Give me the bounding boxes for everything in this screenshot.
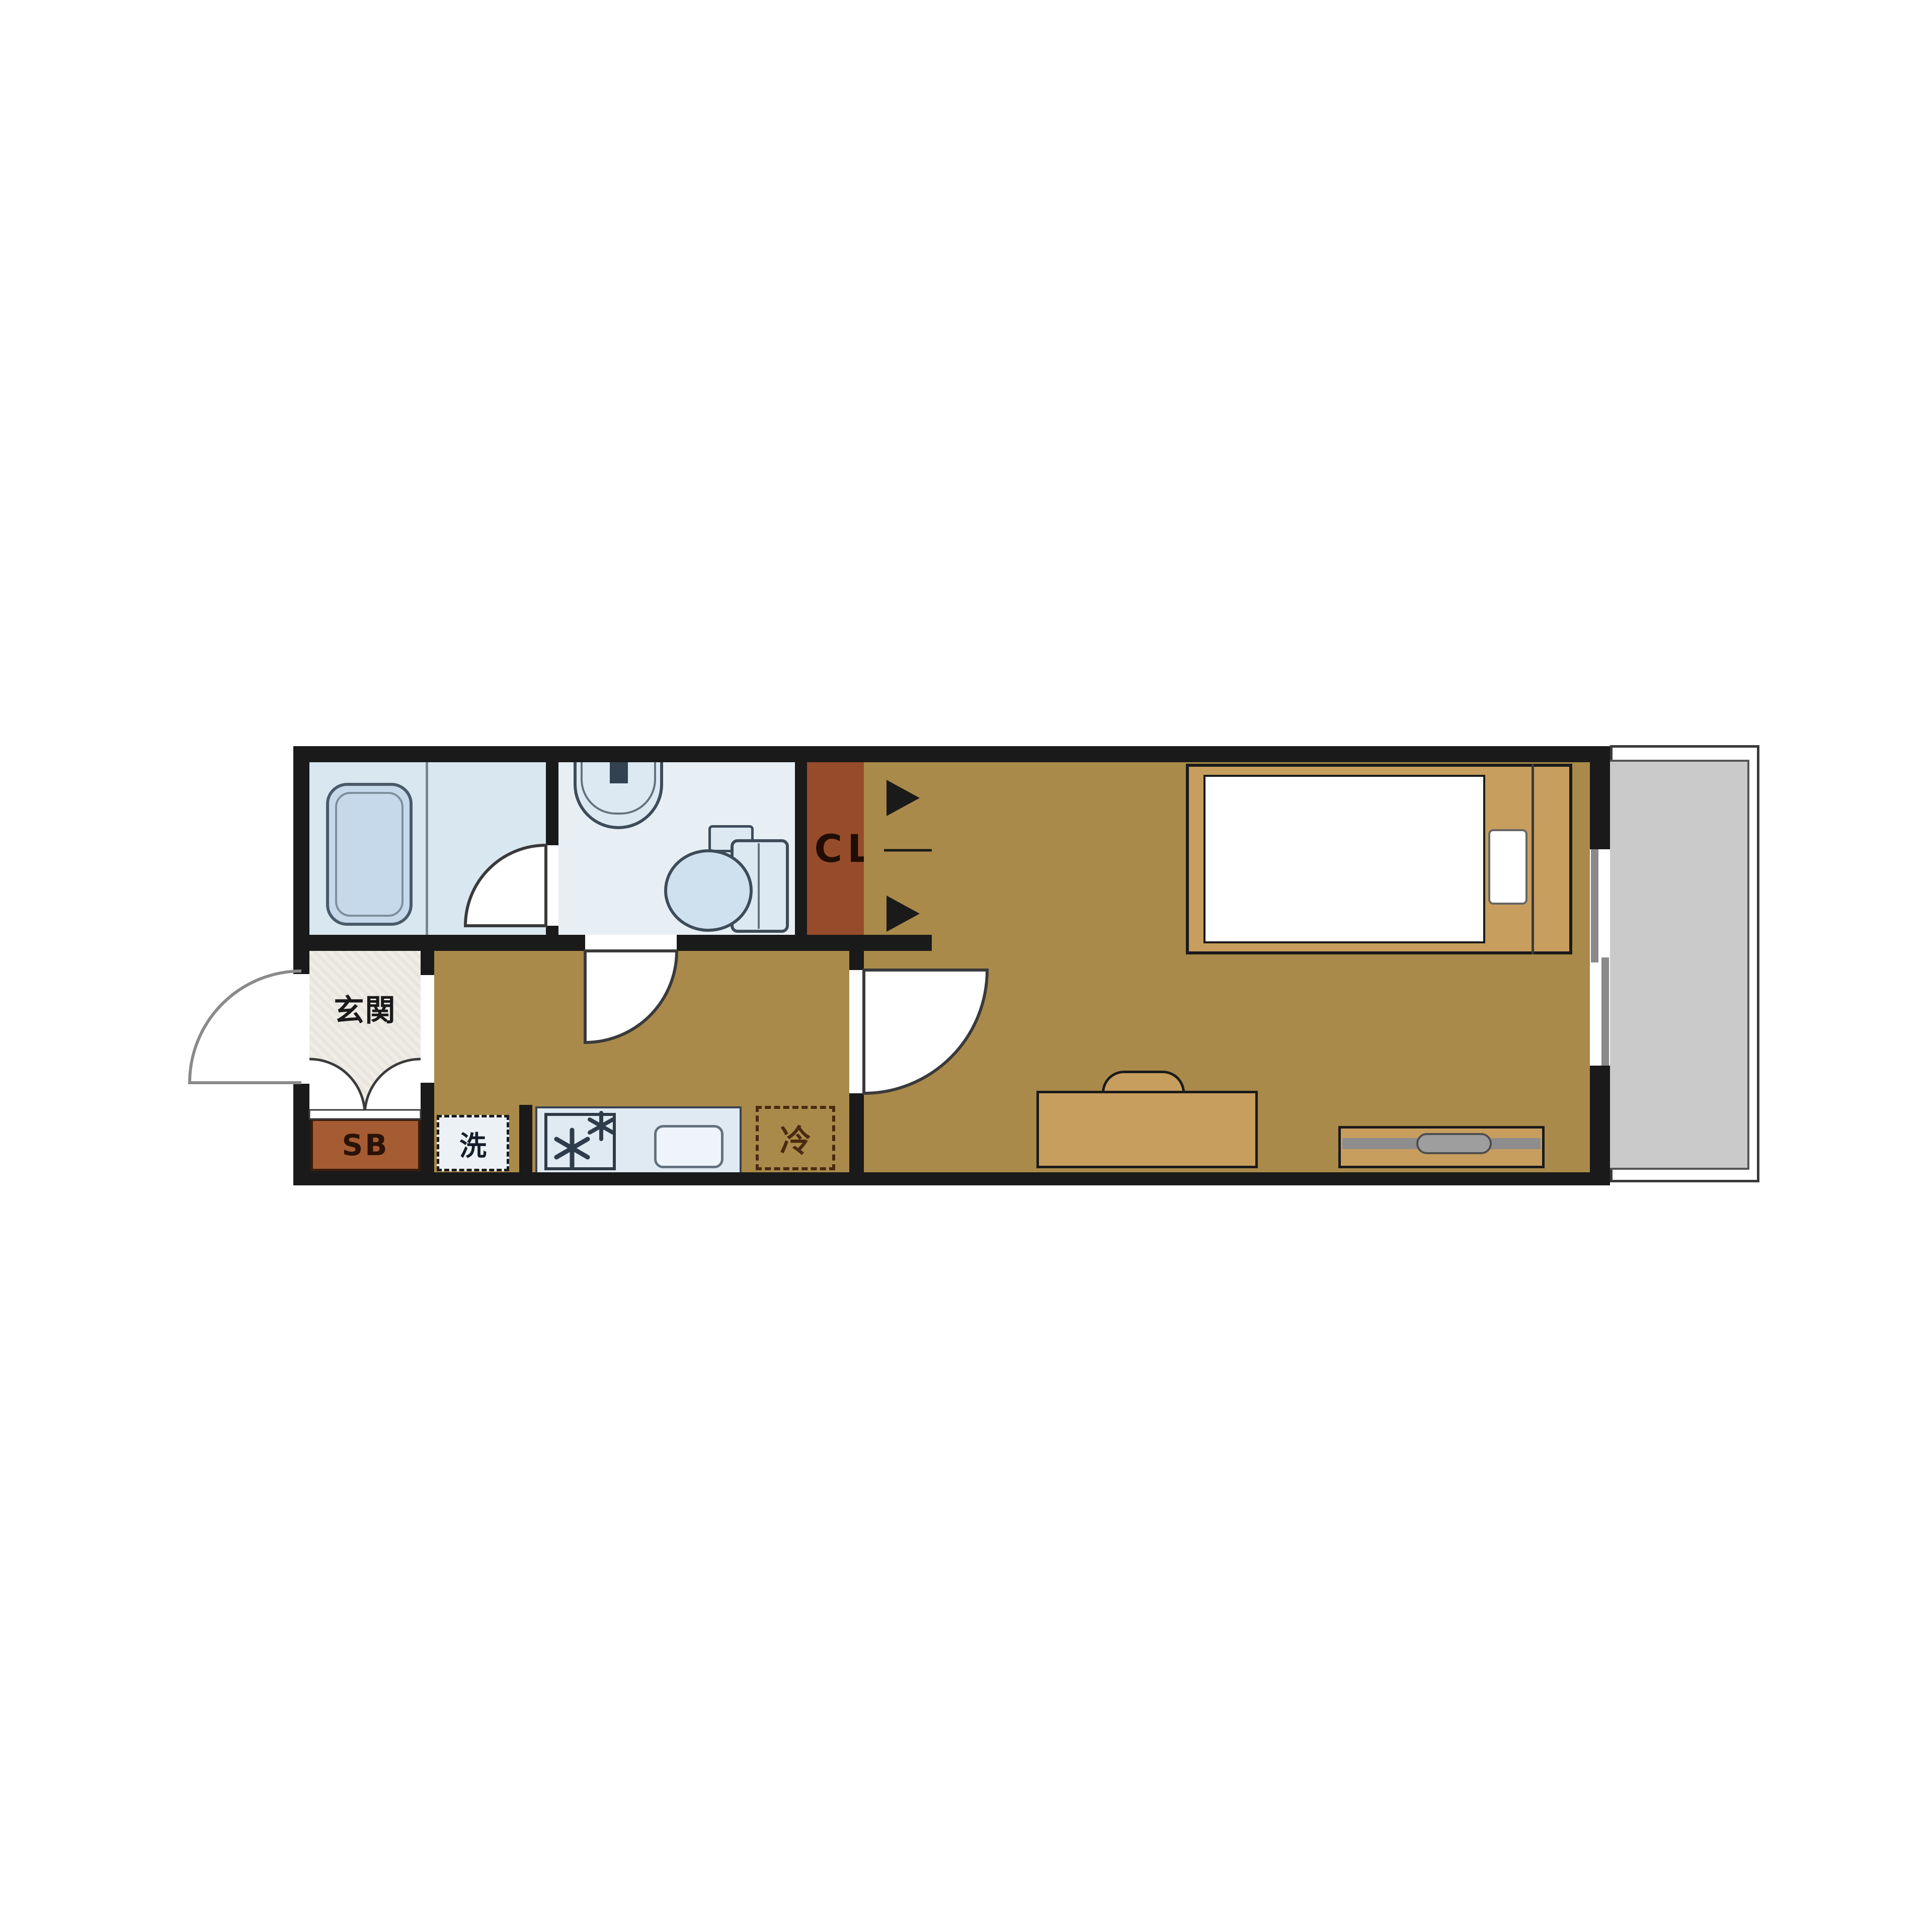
sliding-window-pane [1601, 957, 1609, 1066]
toilet-tank-line [758, 843, 760, 929]
bed-pillow [1488, 829, 1527, 905]
entrance-door-swing [190, 971, 301, 1083]
kitchen-sink [654, 1125, 723, 1168]
entrance-genkan: 玄関 [309, 951, 421, 1118]
balcony [1610, 760, 1749, 1170]
faucet-icon [610, 762, 628, 783]
toilet-bowl [664, 849, 753, 932]
bathtub-inner-rim [335, 792, 404, 917]
tv-icon [1416, 1133, 1492, 1154]
floorplan: CL 玄関 SB 洗 冷 [293, 746, 1610, 1185]
entrance-label: 玄関 [309, 986, 421, 1030]
stove [544, 1113, 616, 1170]
desk [1036, 1091, 1258, 1168]
bed-duvet [1203, 775, 1485, 943]
sliding-window-pane [1591, 849, 1598, 962]
shoe-box-label: SB [342, 1128, 389, 1162]
bed-headboard-line [1532, 764, 1534, 954]
chair [1102, 1071, 1185, 1093]
washing-machine-pan: 洗 [437, 1115, 509, 1171]
refrigerator-space: 冷 [756, 1106, 835, 1170]
washer-label: 洗 [459, 1123, 487, 1163]
wall-segment [864, 935, 932, 951]
shoe-box: SB [310, 1118, 421, 1171]
bathroom-divider [426, 762, 428, 935]
refrigerator-label: 冷 [780, 1115, 811, 1161]
wall-stub [519, 1105, 532, 1172]
